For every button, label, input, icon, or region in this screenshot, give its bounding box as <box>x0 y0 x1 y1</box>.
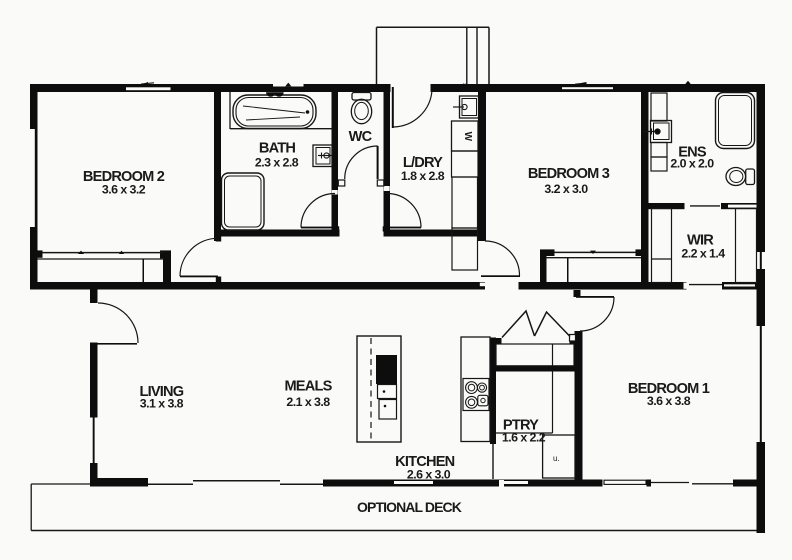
svg-text:BATH: BATH <box>259 141 296 157</box>
svg-text:2.6 x 3.0: 2.6 x 3.0 <box>407 468 451 482</box>
svg-text:2.2 x 1.4: 2.2 x 1.4 <box>681 247 725 261</box>
svg-text:MEALS: MEALS <box>284 379 332 395</box>
svg-text:1.8 x 2.8: 1.8 x 2.8 <box>401 169 445 183</box>
svg-text:u.: u. <box>553 454 560 463</box>
svg-text:2.1 x 3.8: 2.1 x 3.8 <box>286 395 330 409</box>
svg-text:WC: WC <box>349 129 373 145</box>
svg-text:BEDROOM 3: BEDROOM 3 <box>528 166 610 182</box>
svg-text:3.2 x 3.0: 3.2 x 3.0 <box>544 182 588 196</box>
svg-text:W: W <box>462 132 473 142</box>
svg-text:2.3 x 2.8: 2.3 x 2.8 <box>255 156 299 170</box>
svg-text:3.6 x 3.8: 3.6 x 3.8 <box>647 394 691 408</box>
svg-text:1.6 x 2.2: 1.6 x 2.2 <box>502 431 546 445</box>
svg-text:3.6 x 3.2: 3.6 x 3.2 <box>102 183 146 197</box>
svg-text:OPTIONAL DECK: OPTIONAL DECK <box>357 499 462 515</box>
svg-text:2.0 x 2.0: 2.0 x 2.0 <box>670 157 714 171</box>
svg-text:3.1 x 3.8: 3.1 x 3.8 <box>140 397 184 411</box>
